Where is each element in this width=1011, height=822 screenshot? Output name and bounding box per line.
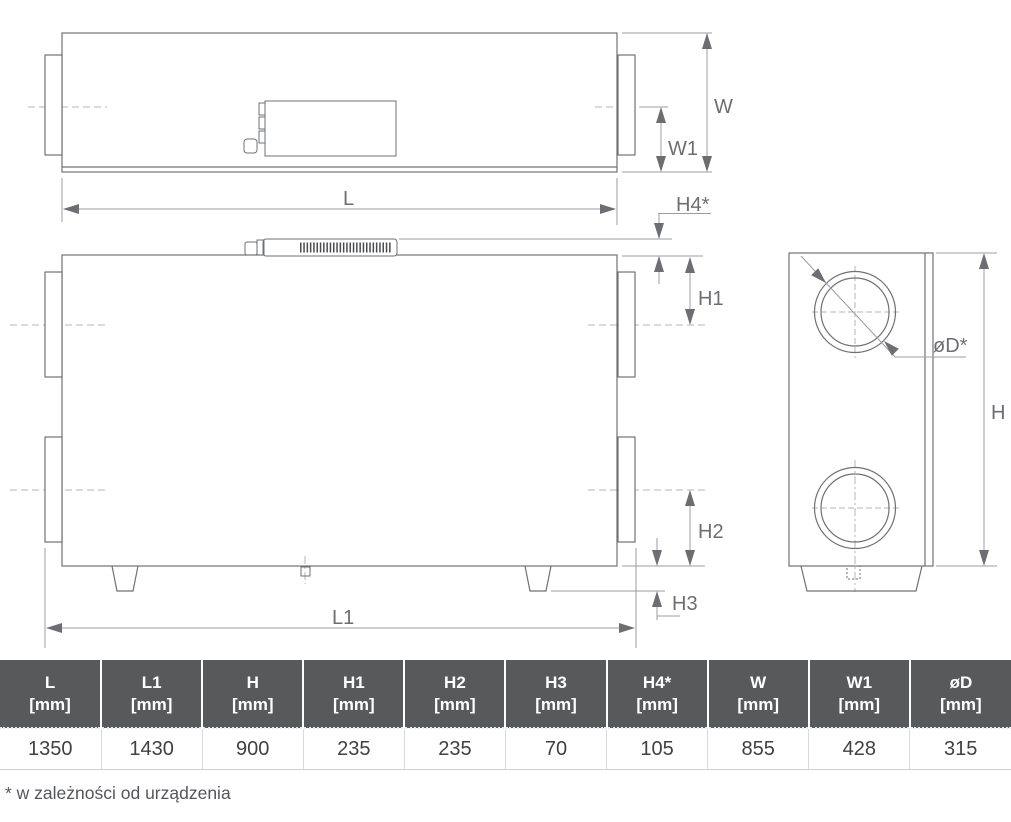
dim-label-h3: H3 — [672, 593, 698, 615]
dimension-labels: W W1 L H4* H1 H2 H3 L1 H øD* — [332, 96, 1005, 629]
dimension-drawing-page: W W1 L H4* H1 H2 H3 L1 H øD* L[mm] L1[mm… — [0, 0, 1011, 822]
value-w1: 428 — [809, 728, 910, 770]
col-header-h2: H2[mm] — [404, 660, 505, 728]
dim-label-h4: H4* — [676, 194, 710, 216]
col-header-h1: H1[mm] — [303, 660, 404, 728]
top-view-right-duct-stub — [618, 55, 635, 155]
dim-label-l1: L1 — [332, 607, 354, 629]
value-d: 315 — [910, 728, 1011, 770]
front-right-upper-stub — [618, 272, 635, 377]
value-l: 1350 — [0, 728, 101, 770]
front-left-upper-stub — [45, 272, 62, 377]
value-h2: 235 — [404, 728, 505, 770]
col-header-l1: L1[mm] — [101, 660, 202, 728]
side-view — [789, 253, 933, 591]
side-base — [801, 566, 922, 591]
side-base-hidden-detail — [847, 566, 860, 579]
top-grille — [245, 239, 397, 256]
front-left-foot — [112, 566, 138, 591]
value-h3: 70 — [505, 728, 606, 770]
dim-label-d: øD* — [933, 335, 968, 357]
col-header-d: øD[mm] — [910, 660, 1011, 728]
col-header-l: L[mm] — [0, 660, 101, 728]
dim-label-w1: W1 — [668, 138, 698, 160]
dimension-arrowheads — [46, 33, 989, 633]
col-header-h3: H3[mm] — [505, 660, 606, 728]
col-header-h4: H4*[mm] — [607, 660, 708, 728]
top-view — [45, 33, 635, 172]
front-right-foot — [525, 566, 551, 591]
control-box — [244, 101, 396, 156]
front-right-lower-stub — [618, 437, 635, 542]
front-left-lower-stub — [45, 437, 62, 542]
col-header-w1: W1[mm] — [809, 660, 910, 728]
dimension-lines — [45, 33, 997, 648]
value-w: 855 — [708, 728, 809, 770]
dim-label-l: L — [343, 188, 354, 210]
value-h1: 235 — [303, 728, 404, 770]
table-header-row: L[mm] L1[mm] H[mm] H1[mm] H2[mm] H3[mm] … — [0, 660, 1011, 728]
dim-label-h: H — [991, 402, 1005, 424]
value-h: 900 — [202, 728, 303, 770]
technical-drawing: W W1 L H4* H1 H2 H3 L1 H øD* — [0, 0, 1011, 660]
dim-label-h2: H2 — [698, 521, 724, 543]
value-h4: 105 — [607, 728, 708, 770]
centerlines — [10, 107, 899, 592]
top-view-left-duct-stub — [45, 55, 62, 155]
dim-label-h1: H1 — [698, 288, 724, 310]
dimensions-table: L[mm] L1[mm] H[mm] H1[mm] H2[mm] H3[mm] … — [0, 660, 1011, 770]
col-header-h: H[mm] — [202, 660, 303, 728]
col-header-w: W[mm] — [708, 660, 809, 728]
value-l1: 1430 — [101, 728, 202, 770]
footnote: * w zależności od urządzenia — [5, 783, 231, 804]
dim-label-w: W — [714, 96, 733, 118]
table-value-row: 1350 1430 900 235 235 70 105 855 428 315 — [0, 728, 1011, 770]
front-view — [45, 239, 635, 591]
